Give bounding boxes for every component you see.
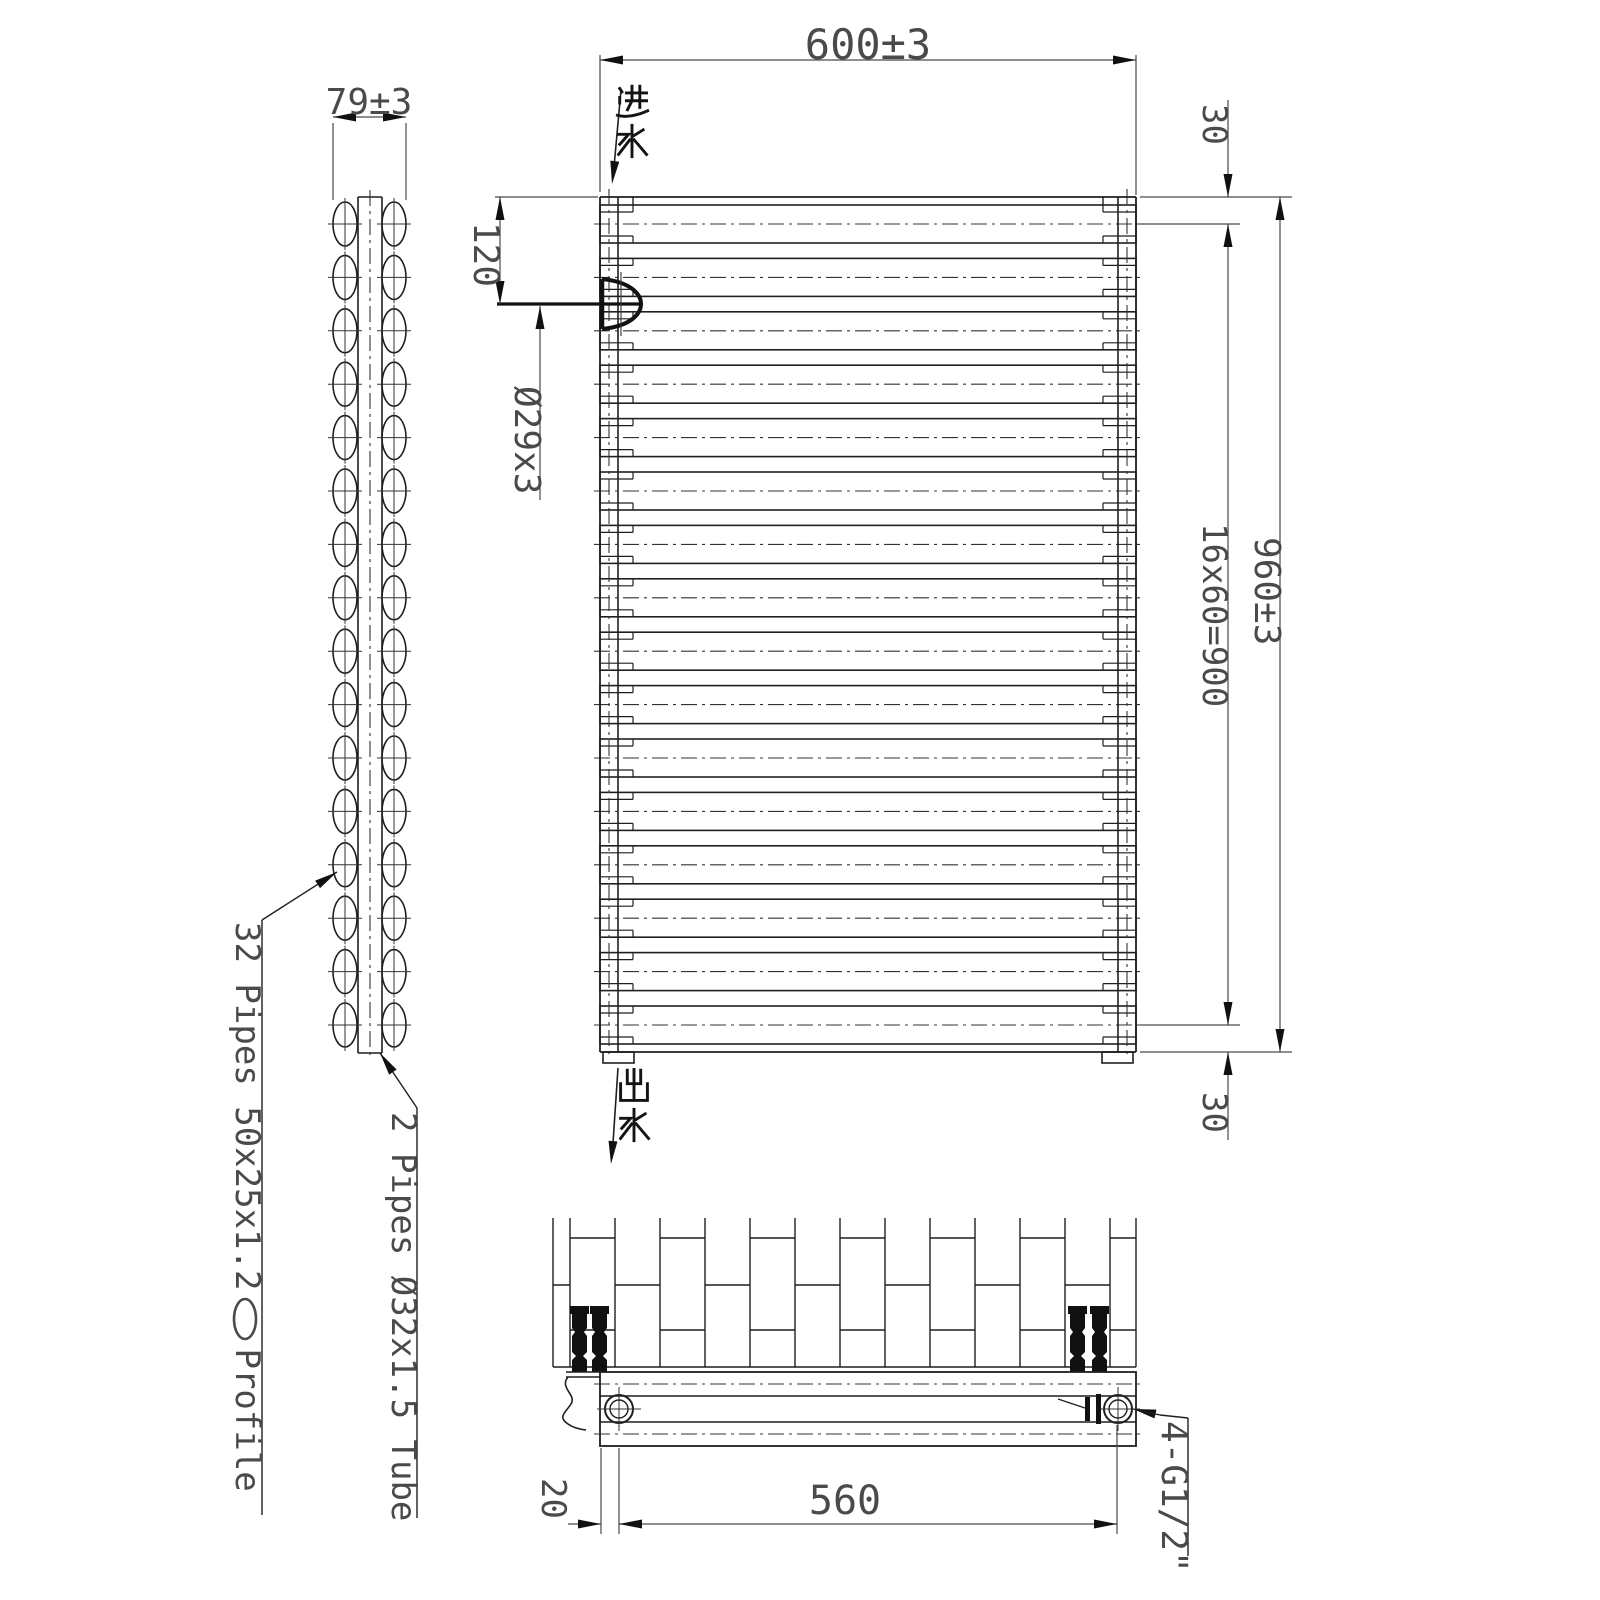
outlet-text-icon xyxy=(616,1068,652,1144)
front-width-dimension: 600±3 xyxy=(805,20,931,69)
tube-pitch-dimension: 16x60=900 xyxy=(1194,523,1234,707)
pipes-32-label: 32 Pipes 50x25x1.2Profile xyxy=(227,922,267,1492)
pipes-32-suffix: Profile xyxy=(227,1348,267,1491)
inlet-offset-dimension: 120 xyxy=(465,222,506,287)
side-width-dimension: 79±3 xyxy=(326,82,413,123)
connection-thread-label: 4-G1/2" xyxy=(1153,1421,1194,1573)
inlet-text-icon xyxy=(614,84,650,160)
end-offset-dimension: 20 xyxy=(533,1478,573,1519)
pipes-32-text: 32 Pipes 50x25x1.2 xyxy=(227,922,267,1290)
top-margin-dimension: 30 xyxy=(1194,104,1234,145)
pipes-2-label: 2 Pipes Ø32x1.5 Tube xyxy=(383,1112,423,1521)
outlet-label: 出水 xyxy=(616,1068,652,1148)
oval-profile-icon xyxy=(232,1296,260,1342)
overall-height-dimension: 960±3 xyxy=(1246,537,1287,645)
inlet-label: 进水 xyxy=(614,84,650,164)
connection-spacing-dimension: 560 xyxy=(809,1478,881,1524)
bottom-margin-dimension: 30 xyxy=(1194,1092,1234,1133)
air-vent-dimension: Ø29x3 xyxy=(506,386,547,494)
technical-drawing: 600±3 79±3 560 120 Ø29x3 30 16x60=900 96… xyxy=(0,0,1600,1600)
